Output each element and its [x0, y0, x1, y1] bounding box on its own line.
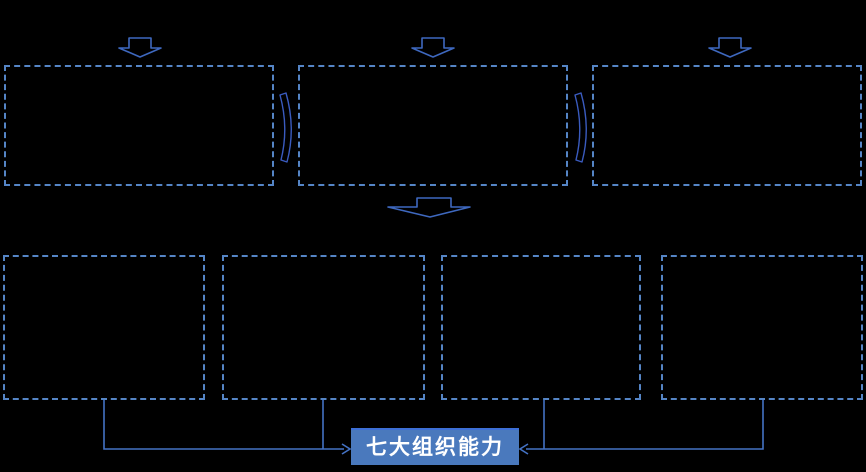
- arrowhead-left-icon: [520, 444, 528, 454]
- down-arrow-icon-3: [709, 38, 751, 57]
- connector-left: [104, 400, 344, 449]
- capability-button[interactable]: 七大组织能力: [351, 428, 519, 465]
- wide-down-arrow-icon: [388, 198, 470, 217]
- down-arrow-icon-2: [412, 38, 454, 57]
- bottom-box-3: [441, 255, 641, 400]
- down-arrow-icon-1: [119, 38, 161, 57]
- capability-button-label: 七大组织能力: [366, 437, 504, 458]
- bottom-box-4: [661, 255, 863, 400]
- bottom-box-1: [3, 255, 205, 400]
- top-box-1: [4, 65, 274, 186]
- top-box-3: [592, 65, 862, 186]
- arrowhead-right-icon: [342, 444, 350, 454]
- diagram-canvas: 七大组织能力: [0, 0, 866, 472]
- chevron-separator-icon-1: [280, 93, 291, 162]
- top-box-2: [298, 65, 568, 186]
- bottom-box-2: [222, 255, 425, 400]
- chevron-separator-icon-2: [575, 93, 586, 162]
- connector-right: [526, 400, 763, 449]
